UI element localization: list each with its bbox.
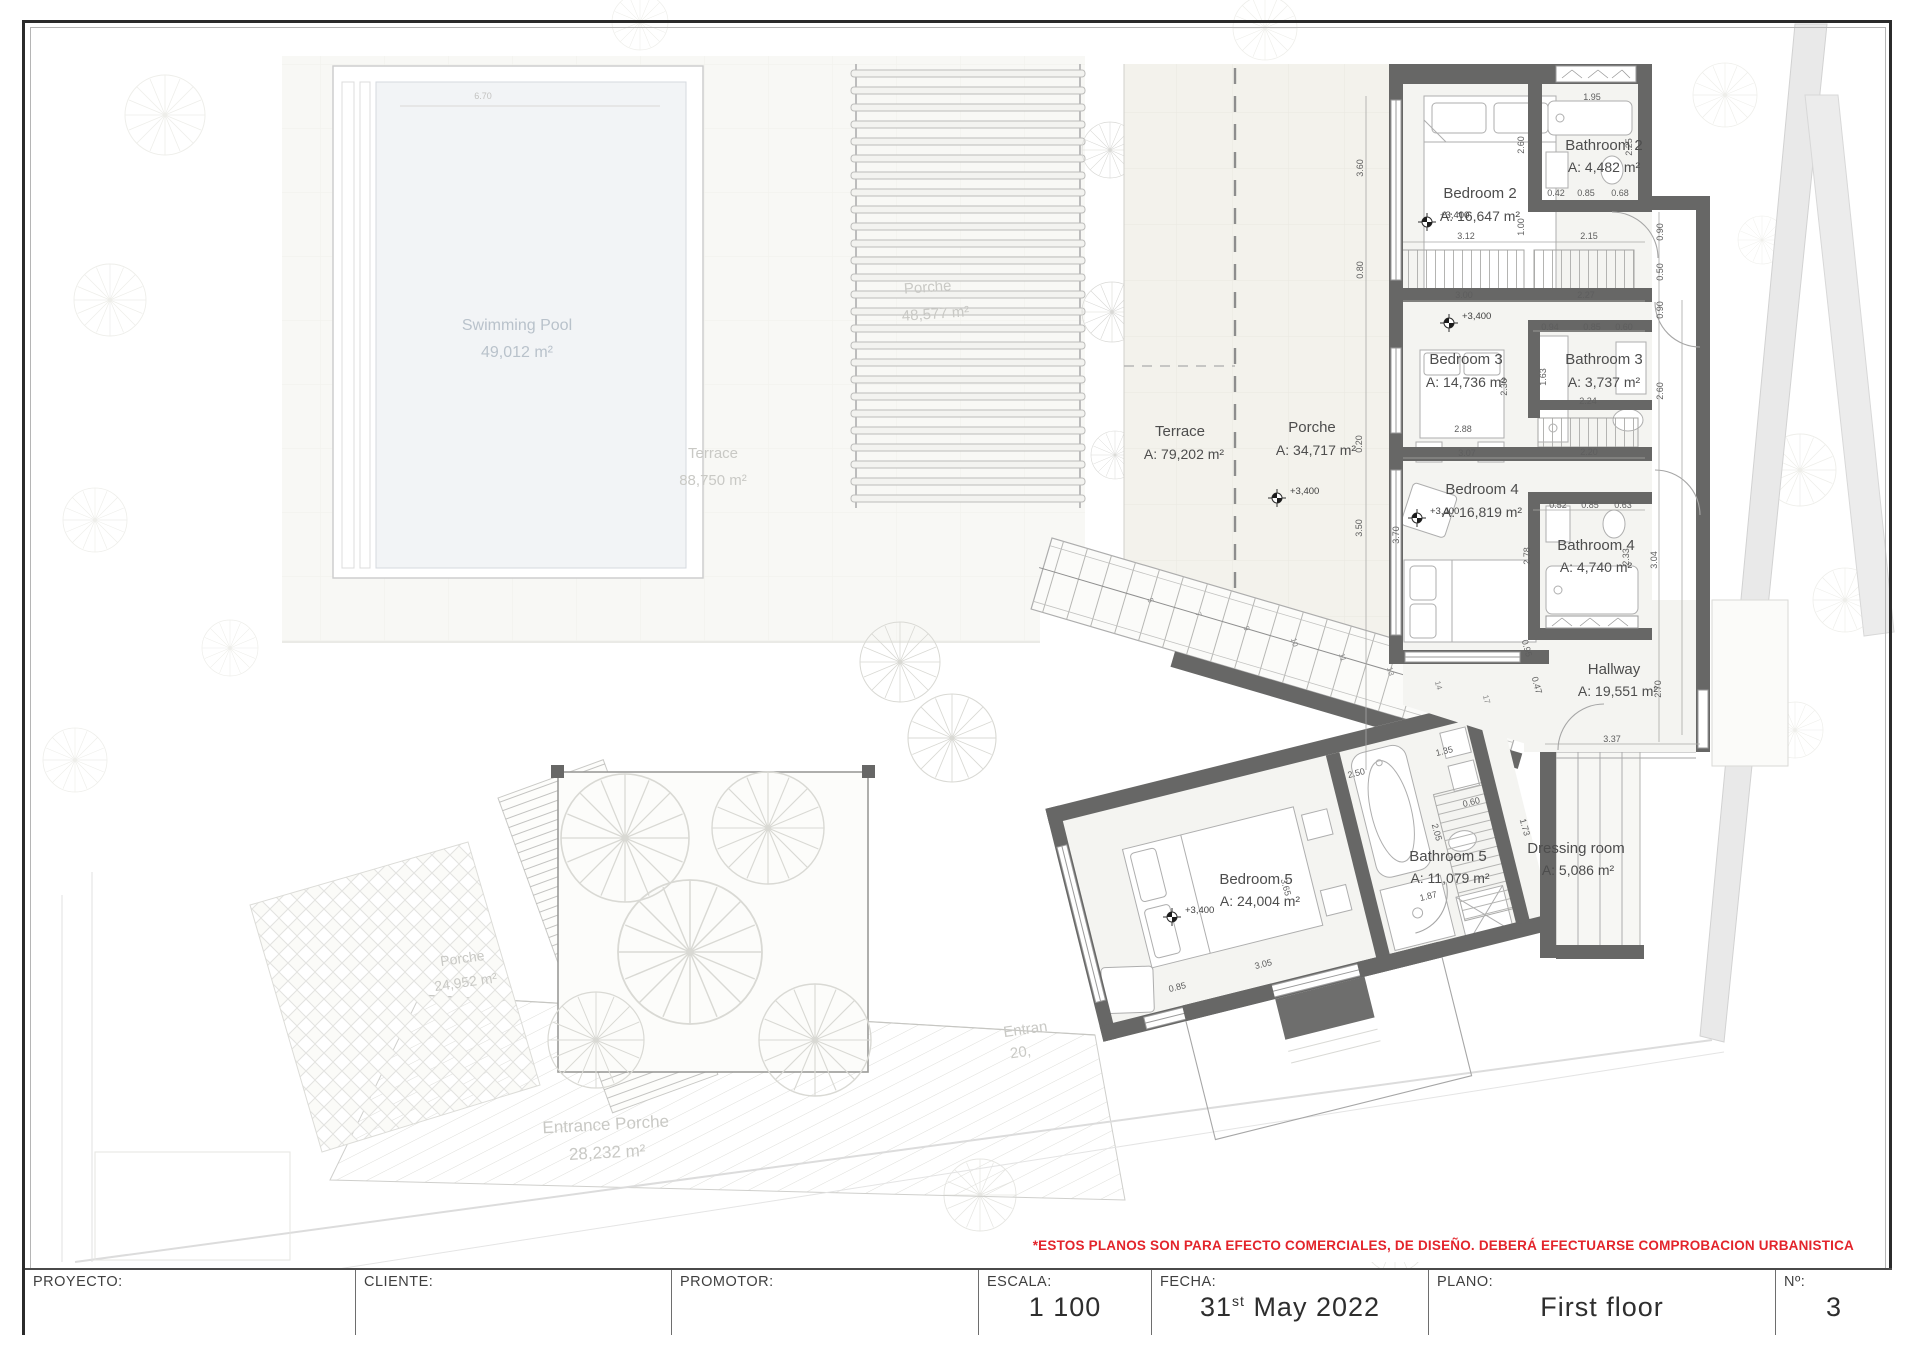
svg-text:Bathroom 5: Bathroom 5 <box>1409 848 1487 865</box>
dimension-label: 2.70 <box>1653 680 1663 698</box>
dimension-label: 0.20 <box>1354 435 1364 453</box>
promotor-label: PROMOTOR: <box>680 1274 774 1290</box>
dimension-label: 2.33 <box>1621 548 1631 566</box>
pool-area: 49,012 m² <box>481 344 554 361</box>
svg-text:A: 34,717 m²: A: 34,717 m² <box>1276 442 1356 458</box>
exterior-deck <box>1712 600 1788 766</box>
dimension-label: 0.52 <box>1549 500 1567 510</box>
dimension-label: 3.70 <box>1391 526 1401 544</box>
dimension-label: 0.63 <box>1614 500 1632 510</box>
dimension-label: 2.60 <box>1655 382 1665 400</box>
dimension-label: 0.85 <box>1581 500 1599 510</box>
svg-text:88,750 m²: 88,750 m² <box>679 472 747 489</box>
svg-text:Bedroom 4: Bedroom 4 <box>1445 481 1518 498</box>
level-marker: +3,400 <box>1430 506 1459 517</box>
dimension-label: 3.04 <box>1649 551 1659 569</box>
dimension-label: 2.27 <box>1577 290 1595 300</box>
numero-value: 3 <box>1776 1292 1892 1323</box>
svg-text:A: 5,086 m²: A: 5,086 m² <box>1542 862 1615 878</box>
pool-label: Swimming Pool <box>462 317 572 334</box>
svg-text:Bedroom 3: Bedroom 3 <box>1429 351 1502 368</box>
dimension-label: 2.25 <box>1624 138 1634 156</box>
dimension-label: 0.85 <box>1583 322 1601 332</box>
dimension-label: 3.12 <box>1457 231 1475 241</box>
svg-text:Terrace: Terrace <box>688 445 738 462</box>
title-block-fecha: FECHA: 31st May 2022 <box>1151 1270 1428 1335</box>
level-marker: +3,400 <box>1462 311 1491 322</box>
svg-text:Hallway: Hallway <box>1588 661 1641 678</box>
dimension-label: 3.00 <box>1455 290 1473 300</box>
svg-text:A: 79,202 m²: A: 79,202 m² <box>1144 446 1224 462</box>
title-block-escala: ESCALA: 1 100 <box>978 1270 1151 1335</box>
floor-plan-canvas: Swimming Pool 49,012 m² 6.70 Terrace 88,… <box>0 0 1920 1358</box>
svg-text:Dressing room: Dressing room <box>1527 840 1625 857</box>
title-block-cliente: CLIENTE: <box>355 1270 671 1335</box>
title-block: PROYECTO: CLIENTE: PROMOTOR: ESCALA: 1 1… <box>25 1268 1892 1335</box>
dimension-label: 2.30 <box>1499 378 1509 396</box>
svg-text:A: 11,079 m²: A: 11,079 m² <box>1410 870 1489 886</box>
dimension-label: 0.80 <box>1355 261 1365 279</box>
svg-text:A: 19,551 m²: A: 19,551 m² <box>1578 683 1658 699</box>
dimension-label: 0.90 <box>1655 223 1665 241</box>
title-block-plano: PLANO: First floor <box>1428 1270 1775 1335</box>
dimension-label: 0.68 <box>1611 188 1629 198</box>
dimension-label: 0.42 <box>1547 188 1565 198</box>
dimension-label: 1.95 <box>1583 92 1601 102</box>
disclaimer-text: *ESTOS PLANOS SON PARA EFECTO COMERCIALE… <box>1033 1238 1854 1253</box>
level-marker: +3,400 <box>1440 210 1469 221</box>
dimension-label: 2.60 <box>1516 136 1526 154</box>
dimension-label: 0.85 <box>1577 188 1595 198</box>
svg-text:Bedroom 2: Bedroom 2 <box>1443 185 1516 202</box>
svg-text:A: 3,737 m²: A: 3,737 m² <box>1568 374 1641 390</box>
drawing-sheet: Swimming Pool 49,012 m² 6.70 Terrace 88,… <box>0 0 1920 1358</box>
dimension-label: 1.00 <box>1516 218 1526 236</box>
dimension-label: 3.07 <box>1458 448 1476 458</box>
dimension-label: 2.78 <box>1522 547 1532 565</box>
svg-text:A: 4,482 m²: A: 4,482 m² <box>1568 159 1641 175</box>
dimension-label: 0.90 <box>1655 301 1665 319</box>
dimension-label: 0.60 <box>1615 322 1633 332</box>
fecha-label: FECHA: <box>1160 1274 1216 1290</box>
dimension-label: 0.50 <box>1655 263 1665 281</box>
svg-text:A: 14,736 m²: A: 14,736 m² <box>1426 374 1506 390</box>
dimension-label: 3.50 <box>1354 519 1364 537</box>
level-marker: +3,400 <box>1185 905 1214 916</box>
plano-label: PLANO: <box>1437 1274 1493 1290</box>
title-block-numero: Nº: 3 <box>1775 1270 1892 1335</box>
dimension-label: 3.37 <box>1603 734 1621 744</box>
proyecto-label: PROYECTO: <box>33 1274 123 1290</box>
escala-value: 1 100 <box>979 1292 1151 1323</box>
dimension-label: 2.88 <box>1454 424 1472 434</box>
fecha-value: 31st May 2022 <box>1152 1292 1428 1323</box>
dimension-label: 0.94 <box>1541 322 1559 332</box>
dimension-label: 2.24 <box>1579 396 1597 406</box>
dimension-label: 2.15 <box>1580 231 1598 241</box>
svg-text:Terrace: Terrace <box>1155 423 1205 440</box>
level-marker: +3,400 <box>1290 486 1319 497</box>
cliente-label: CLIENTE: <box>364 1274 433 1290</box>
dimension-label: 3.60 <box>1355 159 1365 177</box>
svg-text:Porche: Porche <box>903 277 952 297</box>
title-block-proyecto: PROYECTO: <box>25 1270 355 1335</box>
plano-value: First floor <box>1429 1292 1775 1323</box>
numero-label: Nº: <box>1784 1274 1805 1290</box>
dimension-label: 2.20 <box>1580 447 1598 457</box>
title-block-promotor: PROMOTOR: <box>671 1270 978 1335</box>
svg-text:20,: 20, <box>1009 1043 1032 1063</box>
escala-label: ESCALA: <box>987 1274 1052 1290</box>
svg-text:28,232 m²: 28,232 m² <box>568 1141 646 1164</box>
pool-dimension: 6.70 <box>474 91 492 101</box>
dimension-label: 1.63 <box>1538 368 1548 386</box>
svg-text:Porche: Porche <box>1288 419 1336 436</box>
svg-text:Bathroom 3: Bathroom 3 <box>1565 351 1643 368</box>
